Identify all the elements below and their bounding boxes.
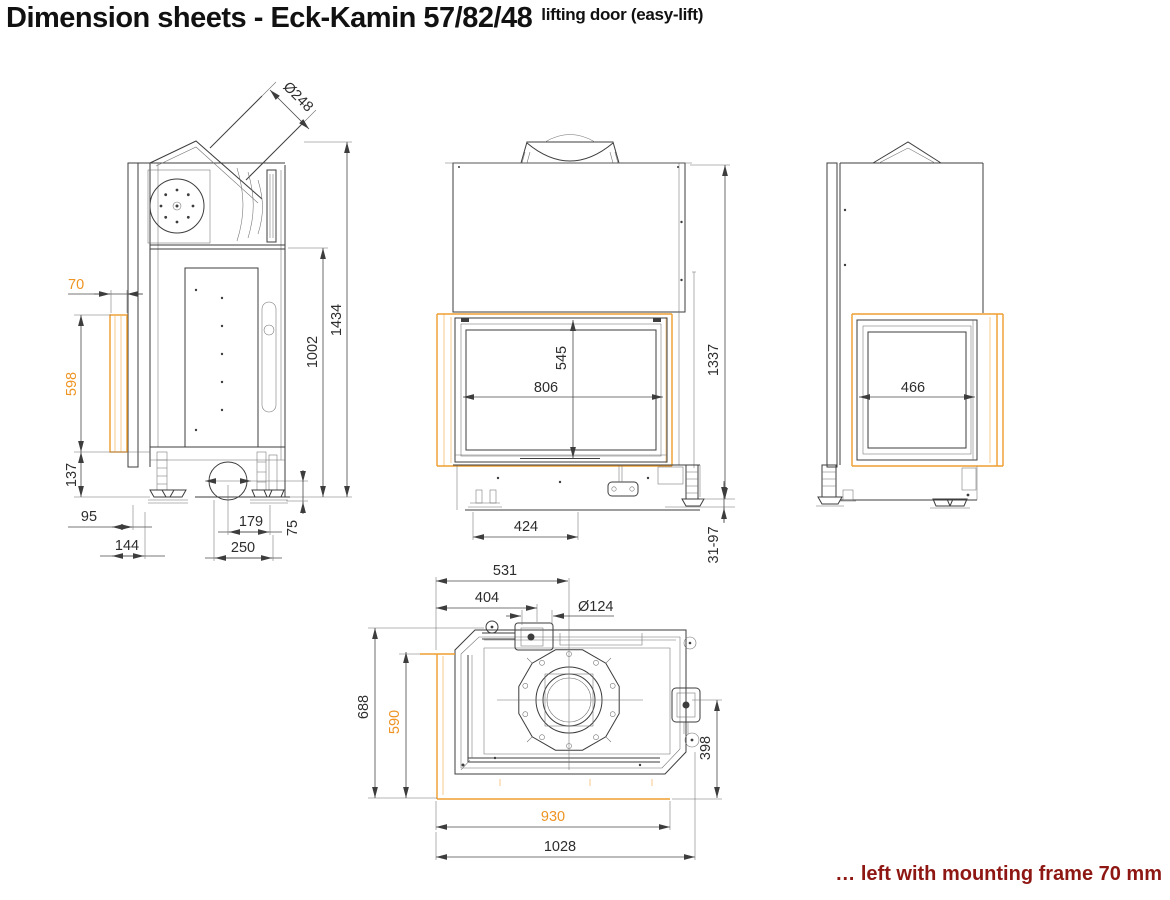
dim-frame-height: 598 (64, 372, 80, 396)
dim-flue-from-left: 531 (493, 563, 517, 579)
dim-glass-height: 545 (554, 346, 570, 370)
dimension-sheet: Dimension sheets - Eck-Kamin 57/82/48 li… (0, 0, 1170, 900)
side-left-view: Ø248 70 598 137 1434 1002 (64, 79, 352, 561)
dim-front-to-foot: 95 (81, 509, 97, 525)
dim-frame-width: 930 (541, 809, 565, 825)
dim-foot-adjustment: 31-97 (706, 526, 722, 563)
base-and-feet (816, 465, 977, 508)
front-dimensions: 545 806 1337 424 31-97 (463, 165, 730, 564)
side-right-dimensions: 466 (859, 380, 975, 397)
dim-total-depth: 688 (356, 695, 372, 719)
dim-flue-diameter: Ø248 (280, 79, 316, 115)
lower-body (150, 268, 285, 460)
dim-total-width: 1028 (544, 839, 576, 855)
window-frame (455, 318, 667, 462)
body-outline (445, 163, 696, 468)
air-connector-bracket (482, 621, 553, 650)
dim-total-height: 1434 (329, 304, 345, 336)
dim-air-inlet-offset: 179 (239, 514, 263, 530)
footer-caption: … left with mounting frame 70 mm (835, 863, 1162, 886)
dim-flue-from-front: 398 (698, 736, 714, 760)
base-and-feet (148, 452, 290, 503)
base-and-feet (453, 465, 735, 510)
body-outline (827, 163, 983, 467)
flue-roof (873, 142, 941, 163)
dim-upper-body-height: 1002 (305, 336, 321, 368)
mounting-frame-outline (852, 314, 1003, 466)
dim-air-inlet-height: 75 (285, 520, 301, 536)
dim-foot-offset: 424 (514, 519, 538, 535)
flue-collar-flange (497, 578, 643, 770)
mounting-frame-strip (110, 315, 127, 452)
dim-glass-width: 806 (534, 380, 558, 396)
fan-assembly (148, 168, 285, 249)
dim-connector-from-left: 404 (475, 590, 499, 606)
dim-glass-width: 466 (901, 380, 925, 396)
dim-plinth-height: 137 (64, 463, 80, 487)
dim-frame-depth: 70 (68, 277, 84, 293)
front-view: 545 806 1337 424 31-97 (437, 135, 735, 564)
dim-frame-side: 590 (387, 710, 403, 734)
flue-duct (150, 96, 302, 203)
body-outline (455, 630, 686, 774)
top-view: 531 404 Ø124 688 590 398 930 (356, 563, 722, 860)
dim-connector-diameter: Ø124 (578, 599, 613, 615)
dim-base-depth: 250 (231, 540, 255, 556)
dim-total-height: 1337 (706, 344, 722, 376)
drawing-canvas: Ø248 70 598 137 1434 1002 (0, 0, 1170, 900)
flue-bowl (521, 135, 619, 164)
dim-frame-to-foot-depth: 144 (115, 538, 139, 554)
top-dimensions: 531 404 Ø124 688 590 398 930 (356, 563, 722, 860)
side-right-view: 466 (816, 142, 1003, 508)
